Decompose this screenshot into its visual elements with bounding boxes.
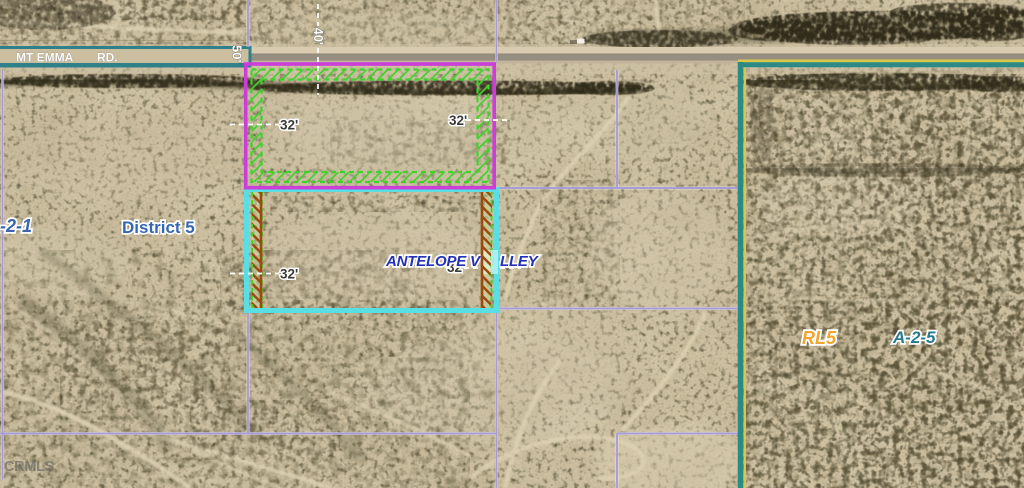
svg-text:32': 32' [280,118,298,133]
svg-text:RL5: RL5 [802,328,837,348]
svg-text:32': 32' [280,267,298,282]
svg-text:CRMLS: CRMLS [4,459,55,475]
svg-text:40': 40' [311,28,326,46]
svg-text:District 5: District 5 [122,218,195,237]
svg-text:RD.: RD. [97,51,118,65]
svg-text:ANTELOPE V: ANTELOPE V [385,253,482,270]
svg-text:MT EMMA: MT EMMA [16,51,74,65]
svg-text:A-2-5: A-2-5 [892,328,936,347]
svg-text:32': 32' [449,113,467,128]
svg-text:50': 50' [230,45,245,63]
svg-text:A-2-1: A-2-1 [0,216,32,236]
svg-text:LLEY: LLEY [500,253,540,270]
